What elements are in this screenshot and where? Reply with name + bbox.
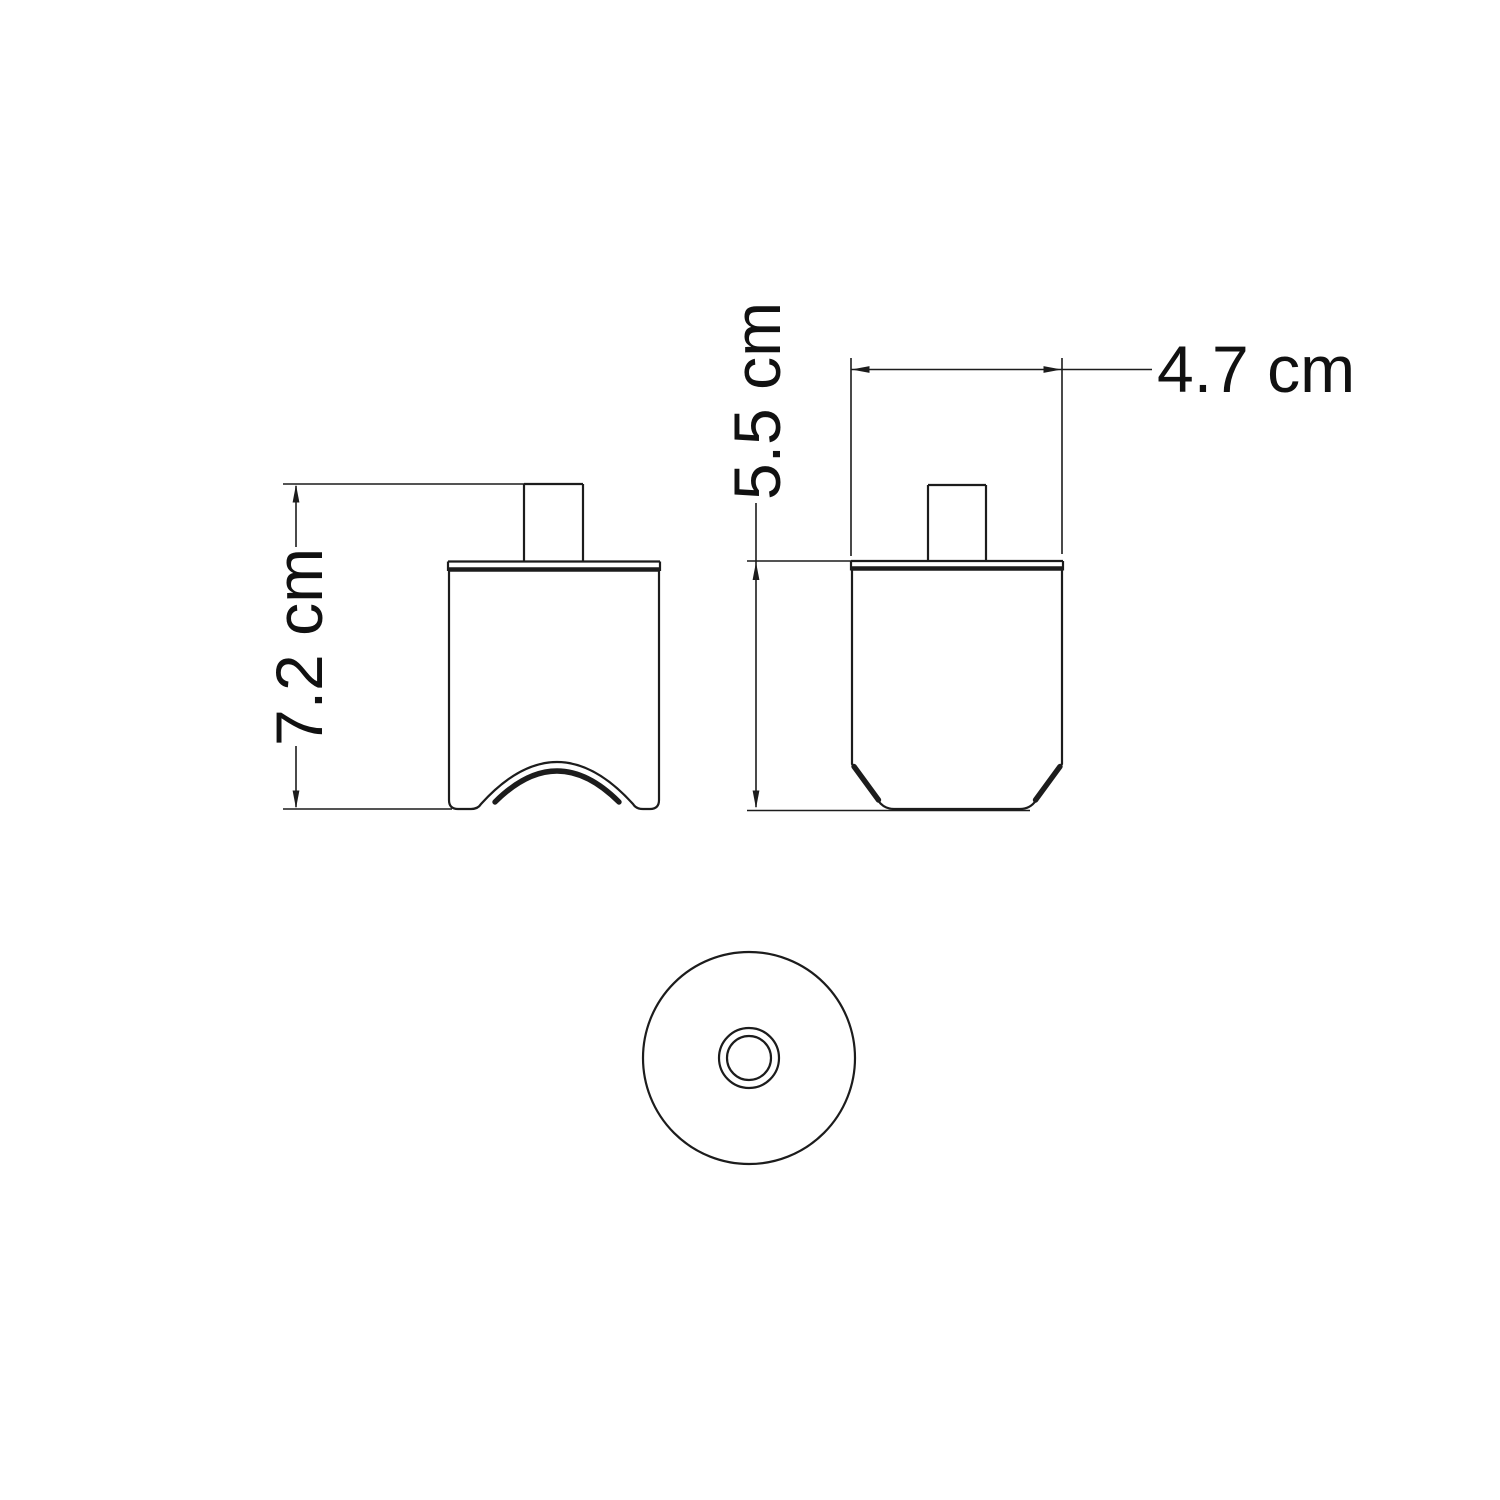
side-width-arrow-left-icon xyxy=(852,366,870,373)
side-body-outline xyxy=(852,571,1062,810)
technical-drawing-canvas: 7.2 cm 5.5 cm 4.7 cm xyxy=(0,0,1500,1500)
side-width-arrow-right-icon xyxy=(1044,366,1062,373)
bottom-view-hole-inner-circle xyxy=(727,1036,771,1080)
side-chamfer-right-edge xyxy=(1036,767,1061,801)
side-height-dimension: 5.5 cm xyxy=(720,302,1030,811)
side-width-label: 4.7 cm xyxy=(1157,332,1355,406)
front-height-dimension: 7.2 cm xyxy=(262,484,524,809)
side-height-arrow-down-icon xyxy=(753,791,760,809)
front-height-arrow-down-icon xyxy=(293,791,300,809)
side-view xyxy=(851,485,1063,809)
front-height-label: 7.2 cm xyxy=(262,548,336,746)
side-height-label: 5.5 cm xyxy=(720,302,794,500)
bottom-view-outer-circle xyxy=(643,952,855,1164)
front-height-arrow-up-icon xyxy=(293,485,300,503)
side-height-arrow-up-icon xyxy=(753,562,760,580)
side-chamfer-left-edge xyxy=(854,767,879,801)
front-view xyxy=(448,484,660,809)
side-width-dimension: 4.7 cm xyxy=(851,332,1355,556)
bottom-view xyxy=(643,952,855,1164)
technical-drawing: 7.2 cm 5.5 cm 4.7 cm xyxy=(0,0,1500,1500)
